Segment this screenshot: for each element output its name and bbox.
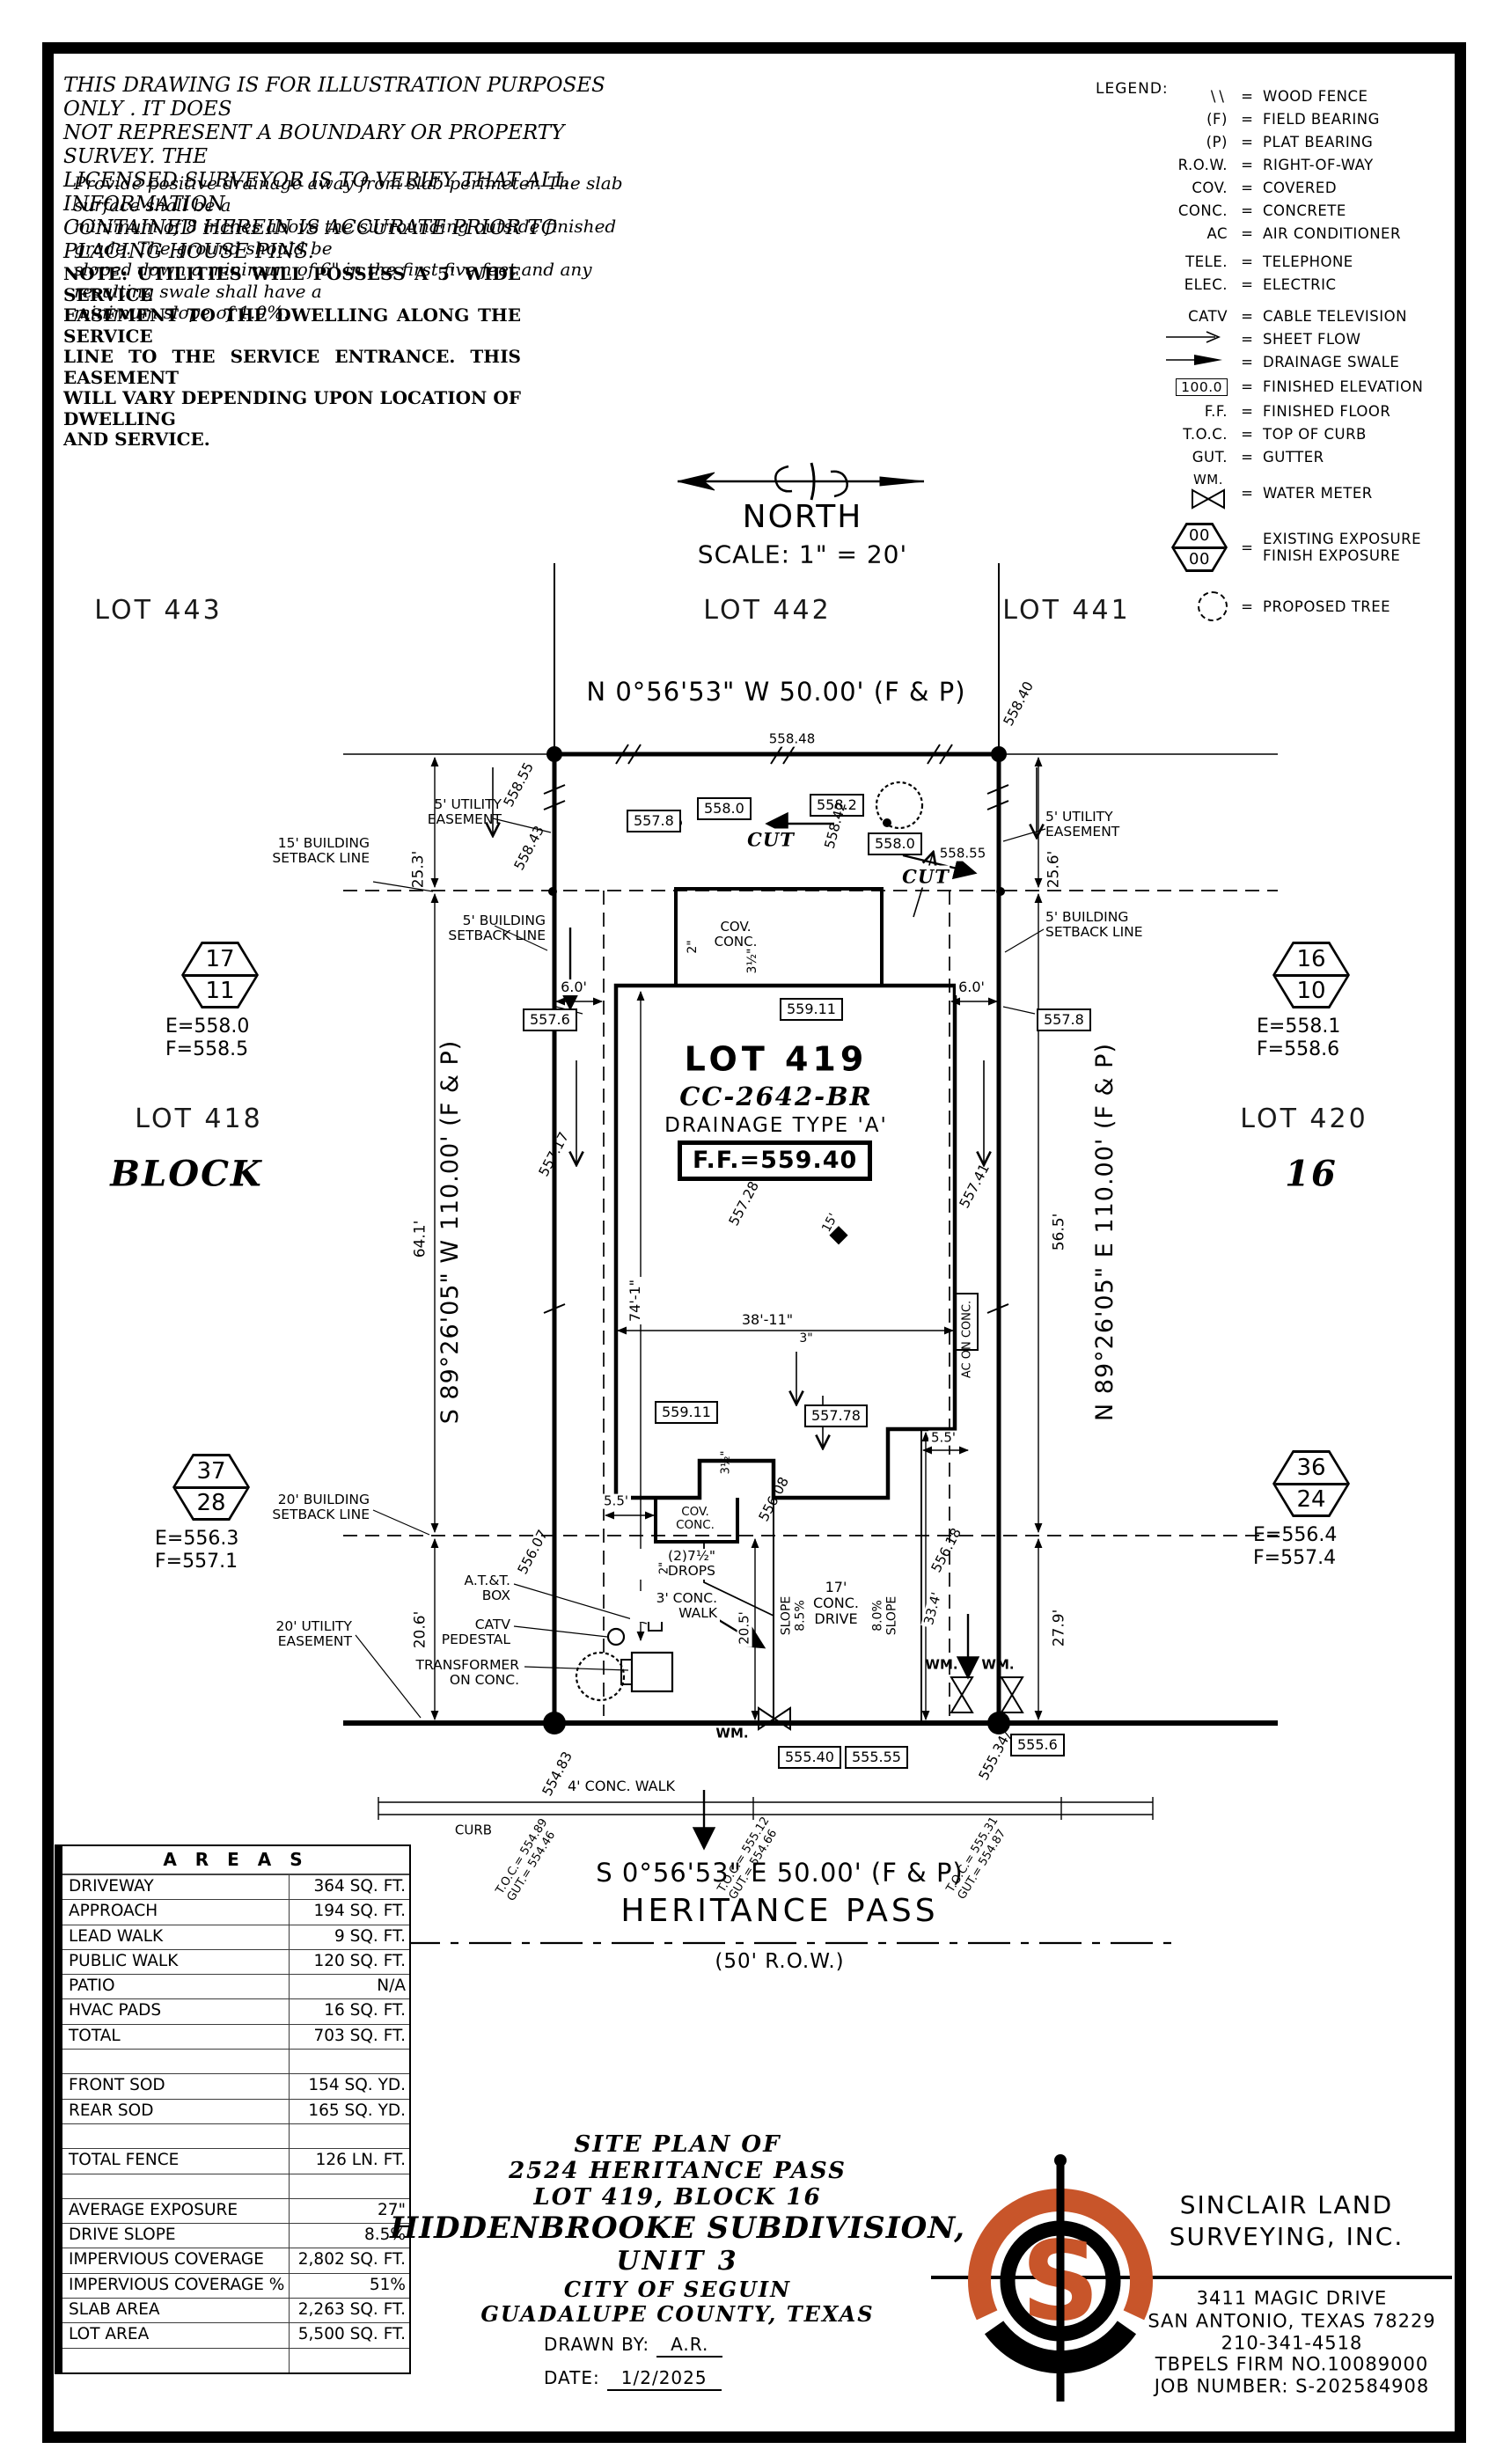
bearing-south: S 0°56'53" E 50.00' (F & P) [596,1859,964,1887]
lot-420-label: LOT 420 [1240,1104,1368,1134]
table-row: HVAC PADS16 SQ. FT. [62,1999,409,2024]
dimension-label: 2" [659,1562,672,1574]
exposure-marker: 1610 [1272,942,1350,1008]
utility-easement-callout: 5' UTILITYEASEMENT [1045,810,1119,840]
job-number: JOB NUMBER: S-202584908 [1155,2375,1430,2397]
legend-row: AC=AIR CONDITIONER [1096,222,1430,245]
cut-label: CUT [747,829,795,851]
water-meter-label: WM. [925,1658,957,1673]
boxed-elevation: 555.40 [778,1746,841,1769]
legend-row: TELE.=TELEPHONE [1096,250,1430,273]
setback-callout: 5' BUILDINGSETBACK LINE [396,913,546,944]
conc-walk-label: 4' CONC. WALK [565,1778,678,1794]
catv-pedestal-callout: CATVPEDESTAL [387,1617,510,1648]
drainage-swale-icon [1096,353,1231,370]
cut-label: CUT [902,866,950,888]
legend-row: GUT.=GUTTER [1096,445,1430,468]
north-arrow-icon [669,461,933,502]
water-meter-label: WM. [715,1727,748,1742]
site-plan-sheet: THIS DRAWING IS FOR ILLUSTRATION PURPOSE… [0,0,1496,2464]
drainage-type: DRAINAGE TYPE 'A' [664,1115,888,1138]
legend-row: COV.=COVERED [1096,176,1430,199]
setback-callout: 15' BUILDINGSETBACK LINE [220,836,370,867]
exposure-values: E=556.3F=557.1 [155,1528,238,1574]
table-row: DRIVEWAY364 SQ. FT. [62,1875,409,1900]
setback-callout: 5' BUILDINGSETBACK LINE [1045,910,1143,941]
legend-row: CATV=CABLE TELEVISION [1096,304,1430,327]
legend-row: R.O.W.=RIGHT-OF-WAY [1096,153,1430,176]
boxed-elevation: 558.0 [868,832,922,855]
boxed-elevation: 557.6 [523,1008,577,1031]
legend-row: =DRAINAGE SWALE [1096,350,1430,373]
sheet-flow-icon [1096,330,1231,348]
dimension-label: 27.9' [1051,1610,1067,1647]
right-of-way-label: (50' R.O.W.) [715,1951,844,1974]
exposure-hex-icon: 0000 [1096,523,1231,572]
firm-address: 3411 MAGIC DRIVE [1197,2287,1388,2309]
wood-fence-icon: \\ [1096,88,1231,105]
legend-row: ELEC.=ELECTRIC [1096,273,1430,296]
utility-easement-note: NOTE: UTILITIES WILL POSSESS A 5' WIDE S… [63,264,521,451]
water-meter-icon: WM. [1096,472,1231,514]
legend-row: \\=WOOD FENCE [1096,84,1430,107]
drawn-by: DRAWN BY:A.R. [544,2334,722,2358]
table-row: APPROACH194 SQ. FT. [62,1900,409,1925]
table-row: IMPERVIOUS COVERAGE2,802 SQ. FT. [62,2248,409,2273]
firm-address: SAN ANTONIO, TEXAS 78229 [1148,2310,1435,2332]
dimension-label: 6.0' [558,979,590,995]
table-row [62,2174,409,2199]
firm-name: SINCLAIR LAND [1180,2190,1393,2220]
table-row: REAR SOD165 SQ. YD. [62,2100,409,2124]
conc-drive-label: 17'CONC.DRIVE [810,1580,862,1627]
lot-441-label: LOT 441 [1002,596,1130,626]
dimension-label: 74'-1" [627,1277,643,1324]
spot-elevation: 558.48 [766,732,818,747]
utility-easement-callout: 5' UTILITYEASEMENT [370,797,502,828]
title-line: SITE PLAN OF [387,2131,968,2158]
table-row [62,2050,409,2074]
finished-floor-elevation: F.F.=559.40 [678,1140,872,1181]
legend-row: 100.0=FINISHED ELEVATION [1096,373,1430,400]
dimension-label: 56.5' [1051,1214,1067,1251]
scale-label: SCALE: 1" = 20' [698,540,907,568]
table-row [62,2349,409,2372]
exposure-values: E=558.1F=558.6 [1257,1016,1340,1062]
legend-row: T.O.C.=TOP OF CURB [1096,422,1430,445]
boxed-elevation: 559.11 [655,1401,718,1424]
boxed-elevation: 555.55 [845,1746,908,1769]
areas-table: A R E A S DRIVEWAY364 SQ. FT. APPROACH19… [55,1844,411,2374]
lot-418-label: LOT 418 [135,1104,262,1134]
legend-row: WM.=WATER METER [1096,468,1430,517]
slope-label: 8.0%SLOPE [871,1596,898,1636]
unit-label: UNIT 3 [387,2246,968,2277]
dimension-label: 6.0' [956,979,987,995]
table-row: TOTAL703 SQ. FT. [62,2025,409,2050]
title-block: SITE PLAN OF 2524 HERITANCE PASS LOT 419… [387,2131,968,2327]
exposure-values: E=556.4F=557.4 [1253,1524,1337,1571]
dimension-label: 5.5' [601,1494,631,1509]
firm-phone: 210-341-4518 [1221,2332,1363,2354]
utility-easement-callout: 20' UTILITYEASEMENT [220,1619,352,1650]
exposure-marker: 1711 [181,942,259,1008]
att-box-callout: A.T.&T.BOX [414,1573,510,1604]
dimension-label: 3" [796,1332,815,1346]
legend: \\=WOOD FENCE (F)=FIELD BEARING (P)=PLAT… [1096,84,1430,627]
lot-442-label: LOT 442 [703,596,831,626]
water-meter-label: WM. [981,1658,1014,1673]
block-label: BLOCK [110,1154,262,1195]
dimension-label: 2" [686,940,700,953]
bearing-west: S 89°26'05" W 110.00' (F & P) [437,1040,464,1425]
transformer-callout: TRANSFORMERON CONC. [352,1658,519,1689]
covered-concrete-label: COV.CONC. [715,920,758,950]
dimension-label: 25.3' [410,851,427,889]
legend-row: =SHEET FLOW [1096,327,1430,350]
dimension-label: 20.6' [412,1611,429,1649]
firm-license: TBPELS FIRM NO.10089000 [1155,2353,1428,2375]
county-label: GUADALUPE COUNTY, TEXAS [387,2302,968,2327]
boxed-elevation: 557.78 [804,1404,868,1427]
date: DATE:1/2/2025 [544,2367,722,2391]
table-row [62,2124,409,2149]
table-row: LEAD WALK9 SQ. FT. [62,1925,409,1950]
firm-name: SURVEYING, INC. [1170,2222,1404,2252]
city-label: CITY OF SEGUIN [387,2277,968,2302]
table-row: TOTAL FENCE126 LN. FT. [62,2149,409,2174]
plan-number: CC-2642-BR [679,1082,873,1111]
legend-row: =PROPOSED TREE [1096,586,1430,627]
title-line: LOT 419, BLOCK 16 [387,2184,968,2211]
lot-443-label: LOT 443 [94,596,222,626]
boxed-elevation: 558.0 [697,797,752,820]
slope-label: SLOPE8.5% [780,1596,807,1636]
dimension-label: 64.1' [412,1221,429,1258]
table-row: SLAB AREA2,263 SQ. FT. [62,2299,409,2323]
dimension-label: 3½" [721,1451,734,1475]
spot-elevation: 558.55 [937,847,989,862]
street-name: HERITANCE PASS [620,1894,938,1929]
legend-row: F.F.=FINISHED FLOOR [1096,400,1430,422]
table-row: LOT AREA5,500 SQ. FT. [62,2323,409,2348]
dimension-label: 25.6' [1045,851,1062,889]
legend-row: (F)=FIELD BEARING [1096,107,1430,130]
table-row: PUBLIC WALK120 SQ. FT. [62,1950,409,1975]
table-row: DRIVE SLOPE8.5% [62,2224,409,2248]
subdivision-name: HIDDENBROOKE SUBDIVISION, [387,2211,968,2246]
dimension-label: 38'-11" [739,1312,796,1328]
bearing-north: N 0°56'53" W 50.00' (F & P) [586,678,965,706]
areas-table-title: A R E A S [62,1846,409,1875]
covered-concrete-label: COV.CONC. [676,1506,715,1532]
subject-lot-label: LOT 419 [685,1041,869,1079]
dimension-label: 20.5' [737,1609,752,1647]
title-line: 2524 HERITANCE PASS [387,2158,968,2184]
north-label: NORTH [743,500,863,535]
legend-row: (P)=PLAT BEARING [1096,130,1430,153]
boxed-elevation: 557.8 [627,810,681,832]
conc-walk-callout: 3' CONC.WALK [630,1591,720,1622]
block-number: 16 [1285,1154,1338,1195]
exposure-values: E=558.0F=558.5 [165,1016,249,1062]
ac-pad-label: AC ON CONC. [962,1301,975,1378]
exposure-marker: 3728 [172,1454,250,1521]
table-row: FRONT SOD154 SQ. YD. [62,2074,409,2099]
boxed-elevation: 555.6 [1010,1734,1065,1756]
bearing-east: N 89°26'05" E 110.00' (F & P) [1092,1043,1118,1421]
table-row: IMPERVIOUS COVERAGE %51% [62,2274,409,2299]
table-row: PATION/A [62,1975,409,1999]
table-row: AVERAGE EXPOSURE27" [62,2199,409,2224]
legend-row: CONC.=CONCRETE [1096,199,1430,222]
legend-row: 0000=EXISTING EXPOSUREFINISH EXPOSURE [1096,517,1430,577]
boxed-elevation: 557.8 [1037,1008,1091,1031]
finished-elevation-icon: 100.0 [1176,378,1228,396]
dimension-label: 3½" [746,949,760,974]
dimension-label: 5.5' [928,1431,958,1446]
boxed-elevation: 559.11 [780,998,843,1021]
exposure-marker: 3624 [1272,1450,1350,1517]
curb-label: CURB [452,1823,495,1838]
